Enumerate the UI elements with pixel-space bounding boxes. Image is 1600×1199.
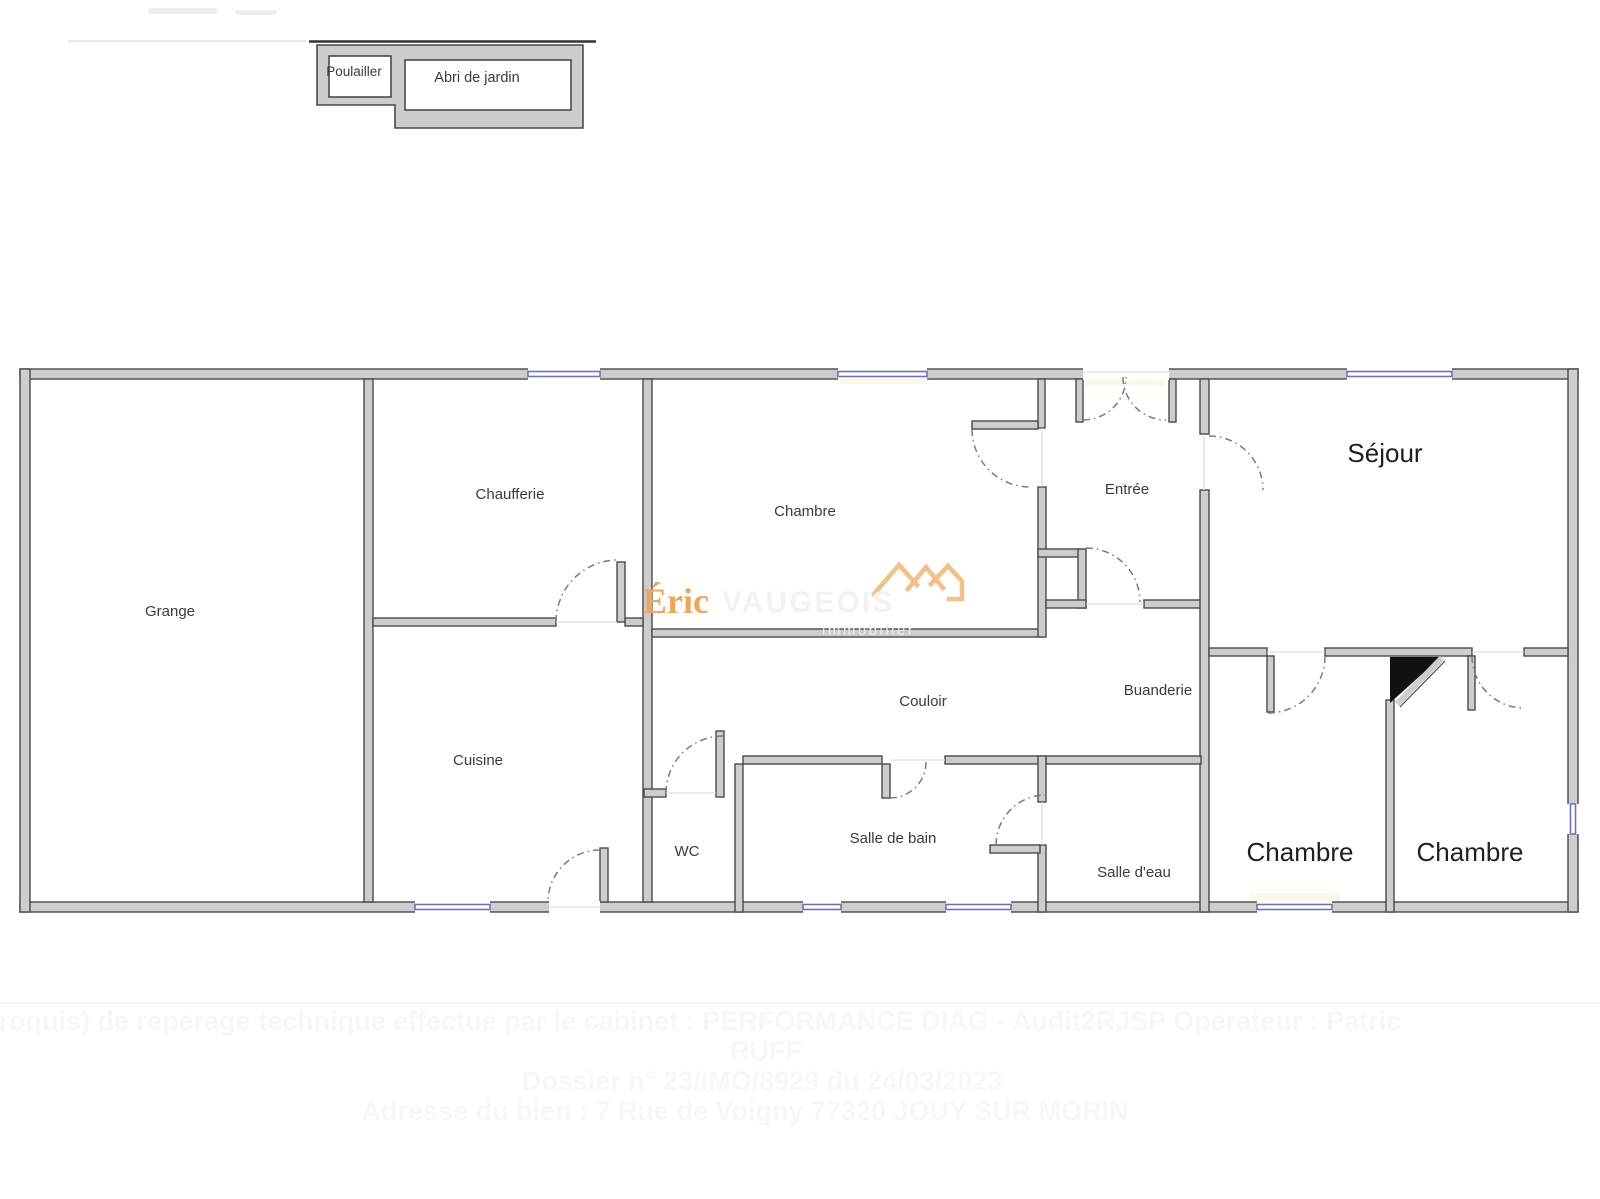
window xyxy=(415,901,490,913)
door-arc xyxy=(1472,656,1524,708)
faint-smudge xyxy=(148,8,218,14)
salle-de-bain-label: Salle de bain xyxy=(850,830,937,847)
footer-line2: RUFF xyxy=(730,1036,802,1066)
wall-segment xyxy=(1267,656,1274,712)
wall-segment xyxy=(1144,600,1201,608)
boundary-lines xyxy=(68,8,596,42)
wall-segment xyxy=(1524,648,1568,656)
agency-watermark: Éric VAUGEOIS immobilier xyxy=(643,565,962,639)
wall-segment xyxy=(735,764,743,912)
door-arc xyxy=(556,560,618,622)
wall-segment xyxy=(1046,756,1201,764)
watermark-brand-rest: VAUGEOIS xyxy=(722,586,894,619)
wall-segment xyxy=(1076,379,1083,422)
wall-segment xyxy=(1038,379,1045,428)
corner-triangle xyxy=(1390,657,1445,707)
wall-segment xyxy=(990,845,1040,853)
cuisine-label: Cuisine xyxy=(453,752,503,769)
abri-de-jardin-label: Abri de jardin xyxy=(434,70,519,86)
wall-segment xyxy=(1209,648,1267,656)
wall-segment xyxy=(945,756,1042,764)
wall-segment xyxy=(1468,656,1475,710)
wall-segment xyxy=(625,618,643,626)
footer-line4: Adresse du bien : 7 Rue de Voigny 77320 … xyxy=(361,1096,1128,1126)
sejour-label: Séjour xyxy=(1347,438,1422,468)
wall-segment xyxy=(600,848,608,902)
wall-segment xyxy=(1038,845,1046,912)
chambre-right-label: Chambre xyxy=(1417,837,1524,867)
outbuildings: Poulailler Abri de jardin xyxy=(317,45,583,128)
wall-segment xyxy=(1386,700,1394,912)
watermark-brand-first: Éric xyxy=(643,581,709,621)
wall-segment xyxy=(644,789,666,797)
walls xyxy=(20,369,1578,912)
window xyxy=(1567,804,1579,834)
poulailler-label: Poulailler xyxy=(326,64,382,79)
wall-segment xyxy=(1169,379,1176,422)
couloir-label: Couloir xyxy=(899,693,947,710)
buanderie-label: Buanderie xyxy=(1124,682,1192,699)
wall-segment xyxy=(972,421,1038,429)
grange-label: Grange xyxy=(145,603,195,620)
door-arc xyxy=(890,762,926,798)
wall-segment xyxy=(1038,549,1080,557)
wall-segment xyxy=(617,562,625,622)
wall-segment xyxy=(20,902,1578,912)
wall-segment xyxy=(364,379,373,902)
floor-plan-canvas: Poulailler Abri de jardin xyxy=(0,0,1600,1199)
window xyxy=(803,901,841,913)
window xyxy=(946,901,1011,913)
wall-segment xyxy=(1200,490,1209,912)
room-labels: Grange Chaufferie Chambre Entrée Séjour … xyxy=(145,438,1523,881)
window xyxy=(1250,893,1340,913)
wall-segment xyxy=(643,379,652,902)
door-arc xyxy=(548,850,600,902)
wall-segment xyxy=(373,618,556,626)
footer-line1: Plan (croquis) de repérage technique eff… xyxy=(0,1006,1401,1036)
chambre-top-label: Chambre xyxy=(774,503,836,520)
footer-watermark: Plan (croquis) de repérage technique eff… xyxy=(0,1003,1600,1126)
wall-segment xyxy=(20,369,1578,379)
wall-segment xyxy=(1078,549,1086,608)
window xyxy=(1347,368,1452,380)
chaufferie-label: Chaufferie xyxy=(476,486,545,503)
footer-line3: Dossier n° 23/IMO/8929 du 24/03/2023 xyxy=(522,1066,1003,1096)
door-arc xyxy=(1268,656,1325,713)
watermark-tagline: immobilier xyxy=(822,622,915,639)
wall-segment xyxy=(20,369,30,912)
wall-segment xyxy=(716,731,724,797)
chambre-left-label: Chambre xyxy=(1247,837,1354,867)
window xyxy=(838,368,927,384)
entree-label: Entrée xyxy=(1105,481,1149,498)
salle-deau-label: Salle d'eau xyxy=(1097,864,1171,881)
faint-smudge xyxy=(235,10,277,15)
door-arc xyxy=(1086,548,1140,602)
wall-segment xyxy=(882,764,890,798)
door-arc xyxy=(972,429,1030,487)
window xyxy=(528,368,600,380)
door-arc xyxy=(666,736,723,793)
door-arc xyxy=(1209,436,1263,490)
wall-segment xyxy=(1200,379,1209,434)
wall-segment xyxy=(1038,487,1046,637)
wall-segment xyxy=(1325,648,1472,656)
wall-segment xyxy=(743,756,882,764)
wc-label: WC xyxy=(675,843,700,860)
wall-segment xyxy=(1046,600,1086,608)
